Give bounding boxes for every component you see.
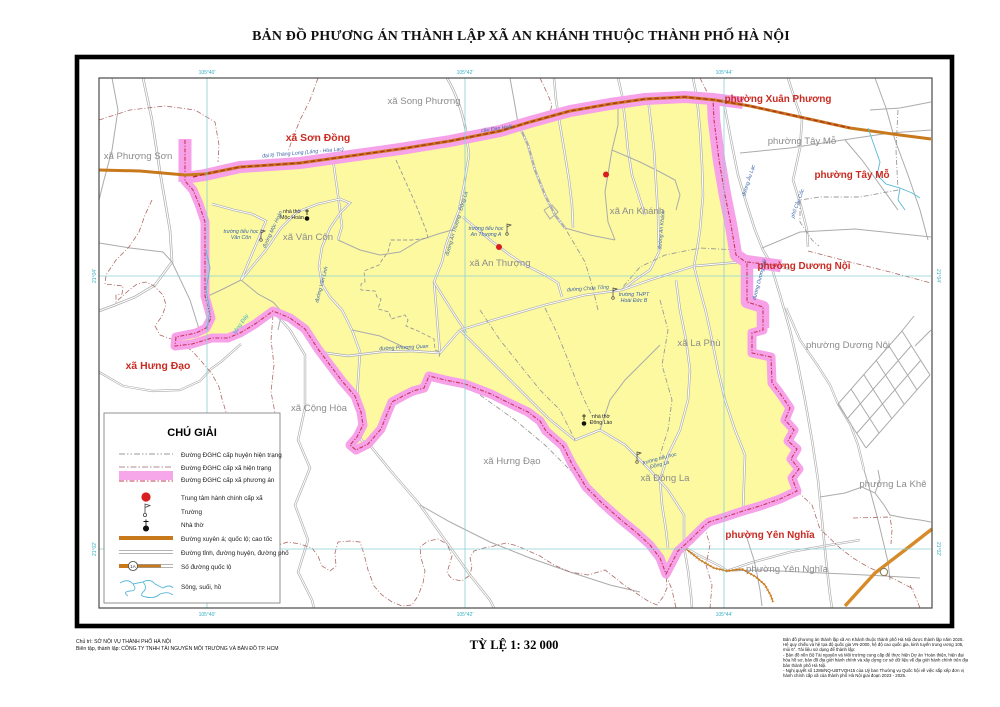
svg-text:BẢN ĐỒ PHƯƠNG ÁN THÀNH LẬP XÃ: BẢN ĐỒ PHƯƠNG ÁN THÀNH LẬP XÃ AN KHÁNH T… [252,26,790,44]
svg-text:phường Yên Nghĩa: phường Yên Nghĩa [725,530,815,541]
svg-text:21°04': 21°04' [935,269,941,283]
svg-text:xã Hưng Đạo: xã Hưng Đạo [126,361,191,372]
svg-text:CHÚ GIẢI: CHÚ GIẢI [167,426,217,439]
svg-text:21°02': 21°02' [935,542,941,556]
svg-text:Số đường quốc lộ: Số đường quốc lộ [181,562,232,571]
svg-text:An Thượng A: An Thượng A [470,232,502,238]
svg-text:Trường: Trường [181,509,203,516]
svg-text:trường tiểu học: trường tiểu học [469,225,504,232]
svg-text:xã Cộng Hòa: xã Cộng Hòa [291,403,348,414]
svg-text:105°42': 105°42' [457,70,474,76]
svg-text:1A: 1A [130,564,136,569]
svg-text:21°02': 21°02' [92,542,98,556]
svg-text:Đường tỉnh, đường huyện, đường: Đường tỉnh, đường huyện, đường phố [181,548,289,557]
svg-text:phường Tây Mỗ: phường Tây Mỗ [814,170,889,181]
svg-text:Hoài Đức B: Hoài Đức B [621,298,648,304]
svg-text:Chủ trì: SỞ NỘI VỤ THÀNH PHỐ: Chủ trì: SỞ NỘI VỤ THÀNH PHỐ HÀ NỘI [76,638,171,645]
svg-text:phường Tây Mỗ: phường Tây Mỗ [768,136,837,147]
svg-text:phường Yên Nghĩa: phường Yên Nghĩa [746,564,829,575]
svg-text:xã Vân Côn: xã Vân Côn [283,232,333,243]
svg-text:Đường ĐGHC cấp huyện hiện trạn: Đường ĐGHC cấp huyện hiện trạng [181,450,282,459]
svg-text:xã Đồng La: xã Đồng La [640,473,690,484]
svg-text:Mộc Hoàn: Mộc Hoàn [280,215,304,221]
svg-text:xã An Khánh: xã An Khánh [610,206,664,217]
svg-text:Biên tập, thành lập: CÔNG TY: Biên tập, thành lập: CÔNG TY TNHH TÀI NG… [76,644,279,652]
svg-text:Đường xuyên á; quốc lộ; cao tố: Đường xuyên á; quốc lộ; cao tốc [181,534,272,543]
svg-text:105°42': 105°42' [457,612,474,618]
svg-text:phường La Khê: phường La Khê [859,479,926,490]
svg-text:Đường ĐGHC cấp xã phương án: Đường ĐGHC cấp xã phương án [181,475,275,484]
svg-text:Vân Côn: Vân Côn [231,235,251,241]
svg-text:Trung tâm hành chính cấp xã: Trung tâm hành chính cấp xã [181,493,263,502]
svg-text:xã Hưng Đạo: xã Hưng Đạo [483,456,540,467]
svg-text:Nhà thờ: Nhà thờ [181,522,204,529]
svg-text:xã Song Phương: xã Song Phương [388,96,461,107]
svg-text:Sông, suối, hồ: Sông, suối, hồ [181,582,222,591]
svg-text:105°40': 105°40' [199,612,216,618]
svg-text:TỲ LỆ 1: 32 000: TỲ LỆ 1: 32 000 [470,638,559,652]
svg-text:105°40': 105°40' [199,70,216,76]
svg-text:phường Xuân Phương: phường Xuân Phương [725,94,832,105]
svg-text:xã Phượng Sơn: xã Phượng Sơn [104,151,173,162]
svg-text:21°04': 21°04' [92,269,98,283]
svg-text:Đông Lào: Đông Lào [590,420,613,426]
svg-text:hành chính cấp xã của thành ph: hành chính cấp xã của thành phố Hà Nội g… [783,673,906,678]
svg-text:105°44': 105°44' [716,612,733,618]
svg-text:xã An Thượng: xã An Thượng [469,258,530,269]
svg-text:xã La Phù: xã La Phù [677,338,720,349]
svg-text:trường tiểu học: trường tiểu học [224,228,259,235]
svg-text:phường Dương Nội: phường Dương Nội [757,261,850,272]
svg-text:phường Dương Nội: phường Dương Nội [806,340,890,351]
svg-text:xã Sơn Đồng: xã Sơn Đồng [286,132,351,144]
svg-text:Đường ĐGHC cấp xã hiện trạng: Đường ĐGHC cấp xã hiện trạng [181,463,272,472]
svg-text:105°44': 105°44' [716,70,733,76]
